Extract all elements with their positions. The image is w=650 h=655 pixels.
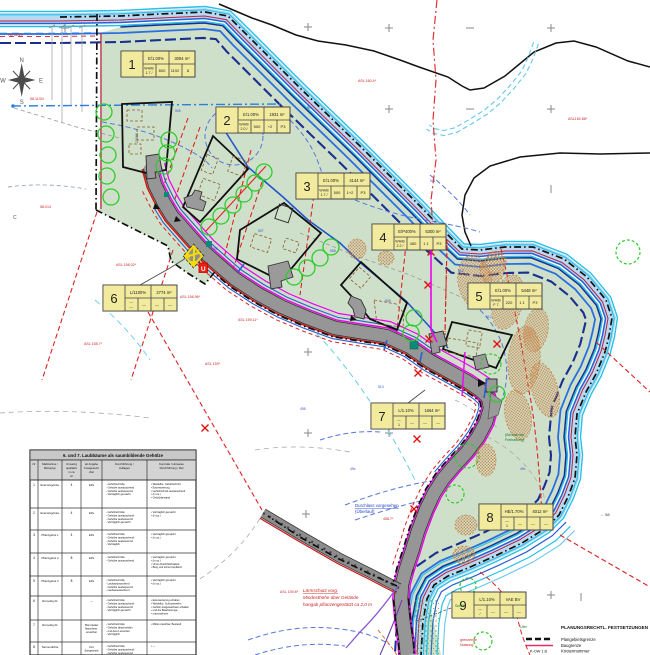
svg-text:1 1: 1 1 [519, 300, 525, 305]
svg-text:Pflanzgebot 1: Pflanzgebot 1 [41, 533, 59, 537]
svg-text:• Verträglich gemacht: • Verträglich gemacht [151, 578, 176, 582]
svg-text:—: — [505, 520, 509, 524]
svg-text:505: 505 [175, 109, 181, 113]
svg-text:E/1.00%: E/1.00% [495, 288, 511, 293]
svg-text:1: 1 [506, 524, 508, 528]
svg-text:800: 800 [159, 68, 166, 73]
svg-text:Nr: Nr [33, 462, 36, 466]
svg-text:—: — [531, 521, 535, 526]
svg-text:C: C [13, 215, 17, 221]
svg-text:—: — [423, 420, 427, 425]
svg-text:512: 512 [486, 315, 492, 319]
svg-text:Vermeidg dir.: Vermeidg dir. [42, 599, 59, 603]
svg-text:• —: • — [151, 645, 156, 648]
svg-text:Baugrenze: Baugrenze [561, 643, 582, 648]
svg-text:• Mittel ersetzbar, Bestand: • Mittel ersetzbar, Bestand [151, 622, 182, 626]
svg-text:2.2 /: 2.2 / [397, 244, 404, 248]
svg-text:1: 1 [33, 483, 35, 487]
svg-text:L/1.10%: L/1.10% [479, 597, 495, 602]
svg-text:• und die Bearbeitungs-: • und die Bearbeitungs- [151, 608, 178, 612]
svg-text:1.7 /: 1.7 / [146, 71, 153, 75]
svg-text:2: 2 [223, 113, 230, 128]
svg-text:—: — [397, 419, 401, 423]
svg-text:P3: P3 [437, 241, 443, 246]
svg-text:- Gehölze austauschend: - Gehölze austauschend [106, 558, 135, 562]
svg-text:4: 4 [33, 556, 35, 560]
svg-text:49x: 49x [350, 467, 356, 471]
svg-text:• Extensivierung: • Extensivierung [151, 485, 170, 489]
svg-text:- Verträglich: - Verträglich [106, 632, 120, 636]
svg-text:- Laubaustauschend: - Laubaustauschend [106, 588, 130, 592]
svg-text:2774 m²: 2774 m² [156, 290, 172, 295]
svg-text:500: 500 [334, 190, 341, 195]
svg-text:• Gehölzbestand: • Gehölzbestand [151, 496, 171, 500]
svg-text:Nutzung: Nutzung [460, 643, 473, 647]
svg-text:• (in ca.): • (in ca.) [151, 492, 161, 496]
svg-text:—: — [517, 609, 521, 614]
svg-text:- Verträglich gemacht: - Verträglich gemacht [106, 608, 131, 612]
svg-text:450: 450 [410, 241, 417, 246]
svg-text:E/P400%: E/P400% [398, 229, 416, 234]
svg-text:ASL 159.8*: ASL 159.8* [280, 590, 299, 594]
svg-text:- Gehölzschnitte: - Gehölzschnitte [106, 532, 125, 536]
svg-text:WH/B: WH/B [395, 240, 405, 244]
svg-text:- Gehölzschnitte: - Gehölzschnitte [106, 510, 125, 514]
svg-text:- Gehölze ausbessernd: - Gehölze ausbessernd [106, 489, 133, 493]
svg-text:—: — [518, 521, 522, 526]
svg-text:23088: 23088 [135, 133, 139, 143]
svg-text:511: 511 [430, 179, 436, 183]
svg-text:Ziel: Ziel [89, 470, 94, 474]
svg-text:Freihaltung): Freihaltung) [505, 438, 524, 442]
svg-text:(fortgesetzt): (fortgesetzt) [85, 648, 99, 652]
svg-text:- Gehölzschnitte: - Gehölzschnitte [106, 555, 125, 559]
svg-text:EPa: EPa [89, 579, 94, 583]
svg-text:- Gehölzschnitte: - Gehölzschnitte [106, 578, 125, 582]
svg-text:Knotennummer: Knotennummer [561, 649, 590, 654]
svg-text:ASL 158.96*: ASL 158.96* [180, 295, 201, 299]
svg-text:1: 1 [128, 57, 135, 72]
svg-text:58.11/04: 58.11/04 [30, 97, 44, 101]
svg-text:E/1.00%: E/1.00% [148, 56, 164, 61]
svg-text:3094 m²: 3094 m² [174, 56, 190, 61]
svg-text:—: — [491, 609, 495, 614]
svg-text:Extensivgrünla.: Extensivgrünla. [40, 511, 59, 515]
svg-text:ASL 159.11*: ASL 159.11* [238, 318, 258, 322]
svg-text:- Laubaustauschend: - Laubaustauschend [106, 581, 130, 585]
svg-text:4: 4 [379, 230, 386, 245]
svg-text:1.7 /: 1.7 / [321, 193, 328, 197]
svg-text:- Gehölzschnitte: - Gehölzschnitte [106, 644, 125, 648]
svg-text:- Gehölze austauschend: - Gehölze austauschend [106, 647, 135, 651]
svg-text:ASL 158.02*: ASL 158.02* [116, 263, 137, 267]
svg-text:VAE BV: VAE BV [506, 597, 521, 602]
svg-text:• Umso Durchführbarkeit: • Umso Durchführbarkeit [151, 562, 180, 566]
svg-text:- Gehölze austauschend: - Gehölze austauschend [106, 485, 135, 489]
svg-text:5300 m²: 5300 m² [425, 229, 441, 234]
svg-text:HE/1.70%: HE/1.70% [505, 509, 524, 514]
svg-text:495: 495 [300, 407, 306, 411]
svg-text:4: 4 [71, 533, 73, 537]
svg-text:- Gehölze austauschend: - Gehölze austauschend [106, 513, 135, 517]
svg-text:1931 m²: 1931 m² [269, 112, 285, 117]
svg-text:Fort: Fort [89, 645, 94, 649]
svg-text:58.013: 58.013 [40, 205, 51, 209]
svg-text:ASL160.88*: ASL160.88* [568, 117, 588, 121]
svg-text:W: W [0, 79, 6, 85]
svg-text:500: 500 [254, 124, 261, 129]
svg-text:Auflagen: Auflagen [119, 466, 130, 470]
svg-text:+2: +2 [268, 124, 273, 129]
svg-text:2: 2 [33, 511, 35, 515]
svg-text:- und deren ersetzen: - und deren ersetzen [106, 629, 130, 633]
svg-text:5: 5 [33, 579, 35, 583]
svg-text:Durchlass vorgesehen: Durchlass vorgesehen [355, 503, 399, 508]
svg-text:—: — [544, 521, 548, 526]
svg-text:508: 508 [330, 249, 336, 253]
svg-text:• Gehölz ausgewachsen erhalte: • Gehölz ausgewachsen erhalten [151, 605, 190, 609]
svg-text:WH/B: WH/B [491, 299, 501, 303]
svg-text:509: 509 [385, 299, 391, 303]
svg-text:ASL 159*: ASL 159* [205, 362, 221, 366]
svg-text:—: — [90, 600, 93, 603]
svg-text:P3: P3 [361, 190, 367, 195]
svg-text:← 58: ← 58 [600, 512, 610, 517]
svg-text:—: — [436, 420, 440, 425]
svg-text:• Verträglich gemacht: • Verträglich gemacht [151, 532, 176, 536]
svg-text:- Verträglich gemacht: - Verträglich gemacht [106, 520, 131, 524]
svg-text:• Berg und schon bepflanzt: • Berg und schon bepflanzt [151, 565, 182, 569]
svg-text:• Gehölzschnitt austauschend: • Gehölzschnitt austauschend [151, 489, 186, 493]
svg-text:E: E [39, 79, 43, 85]
svg-text:- Verträglich: - Verträglich [106, 542, 120, 546]
svg-text:5: 5 [475, 289, 482, 304]
svg-text:L/1.10%: L/1.10% [398, 408, 414, 413]
svg-text:- Gehölze ausbessernd: - Gehölze ausbessernd [106, 605, 133, 609]
svg-text:ASL 158.7*: ASL 158.7* [84, 342, 103, 346]
svg-text:2.0 /: 2.0 / [241, 127, 248, 131]
svg-text:PLANUNGSRECHTL. FESTSETZUNGEN: PLANUNGSRECHTL. FESTSETZUNGEN [561, 625, 649, 630]
svg-text:Pflanzgebot 2: Pflanzgebot 2 [41, 556, 59, 560]
svg-text:Plan lokaler: Plan lokaler [85, 623, 99, 627]
svg-text:- Gehölze ausbessernd: - Gehölze ausbessernd [106, 651, 133, 655]
svg-text:- Gehölzschnitte: - Gehölzschnitte [106, 598, 125, 602]
svg-text:• (in ca.): • (in ca.) [151, 513, 161, 517]
svg-text:4: 4 [71, 483, 73, 487]
svg-text:• massnahmen: • massnahmen [151, 612, 169, 616]
svg-text:• Extensivierung erhalten: • Extensivierung erhalten [151, 598, 180, 602]
svg-text:- Gehölze abschneiden: - Gehölze abschneiden [106, 625, 133, 629]
svg-text:- Gehölze ausbessernd: - Gehölze ausbessernd [106, 539, 133, 543]
svg-text:6: 6 [110, 291, 117, 306]
svg-text:• (in ca.): • (in ca.) [151, 535, 161, 539]
svg-text:L/1100%: L/1100% [130, 290, 146, 295]
svg-text:• Verträglich gemacht: • Verträglich gemacht [151, 555, 176, 559]
svg-text:4012 m²: 4012 m² [532, 509, 548, 514]
svg-text:7: 7 [378, 409, 385, 424]
svg-text:F 7: F 7 [493, 303, 498, 307]
svg-text:Biotoptyp: Biotoptyp [44, 466, 56, 470]
svg-text:513: 513 [378, 385, 384, 389]
svg-text:Hp 58.20: Hp 58.20 [8, 33, 23, 37]
svg-text:U: U [201, 266, 206, 273]
svg-text:458.7*: 458.7* [383, 517, 394, 521]
svg-text:m²: m² [70, 474, 73, 478]
svg-text:1 1: 1 1 [423, 241, 429, 246]
svg-text:hangab pflanzengestützt ca 2,0: hangab pflanzengestützt ca 2,0 m [303, 602, 372, 607]
svg-text:—: — [478, 608, 482, 612]
svg-text:- Gehölze ausbessernd: - Gehölze ausbessernd [106, 517, 133, 521]
svg-text:- Verträglich gemacht: - Verträglich gemacht [106, 492, 131, 496]
svg-text:P3: P3 [533, 300, 539, 305]
svg-text:Durchführung / Ziel: Durchführung / Ziel [160, 466, 184, 470]
svg-text:1192: 1192 [171, 68, 180, 73]
svg-text:EPa: EPa [89, 483, 94, 487]
svg-text:• Verträglich gemacht: • Verträglich gemacht [151, 510, 176, 514]
svg-text:1+2: 1+2 [347, 190, 355, 195]
svg-text:1664 m²: 1664 m² [424, 408, 440, 413]
svg-text:507: 507 [258, 229, 264, 233]
svg-text:Tannendichte: Tannendichte [42, 645, 59, 649]
svg-text:510: 510 [458, 269, 464, 273]
svg-text:7: 7 [33, 623, 35, 627]
svg-text:• (in ca.): • (in ca.) [151, 558, 161, 562]
svg-text:P3: P3 [281, 124, 287, 129]
svg-text:N: N [20, 58, 24, 64]
svg-text:- Gehölzschnitte: - Gehölzschnitte [106, 622, 125, 626]
svg-text:Baumbest.: Baumbest. [85, 626, 98, 630]
svg-text:K-OW 1 B: K-OW 1 B [530, 650, 548, 654]
svg-text:4: 4 [71, 511, 73, 515]
svg-text:WH/B: WH/B [144, 67, 154, 71]
svg-text:—: — [142, 302, 146, 307]
svg-text:Extensivgrünla.: Extensivgrünla. [40, 483, 59, 487]
svg-text:220: 220 [506, 300, 513, 305]
svg-text:S: S [20, 100, 24, 106]
svg-text:(Bereich der: (Bereich der [505, 433, 525, 437]
svg-text:—: — [168, 302, 172, 307]
svg-text:E/1.00%: E/1.00% [323, 178, 339, 183]
svg-text:5448 m²: 5448 m² [521, 288, 537, 293]
svg-text:ersetzbar: ersetzbar [86, 630, 97, 634]
svg-text:3: 3 [33, 533, 35, 537]
svg-text:Pflanzgebot 3: Pflanzgebot 3 [41, 579, 59, 583]
svg-text:8: 8 [33, 645, 35, 649]
svg-text:4144 m²: 4144 m² [349, 178, 365, 183]
svg-text:6: 6 [33, 599, 35, 603]
svg-text:• Weideflur, Schutzstreifen: • Weideflur, Schutzstreifen [151, 601, 182, 605]
svg-text:8: 8 [486, 510, 493, 525]
svg-text:E/1.00%: E/1.00% [243, 112, 259, 117]
svg-text:WH/B: WH/B [319, 189, 329, 193]
svg-text:49x: 49x [520, 467, 526, 471]
svg-text:—: — [410, 420, 414, 425]
svg-text:1: 1 [398, 423, 400, 427]
svg-text:- Gehölze austauschend: - Gehölze austauschend [106, 535, 135, 539]
svg-text:Schilf: Schilf [455, 604, 464, 608]
svg-text:WH/B: WH/B [239, 123, 249, 127]
svg-text:(Überlauf): (Überlauf) [355, 509, 375, 514]
svg-text:/: / [480, 612, 481, 616]
svg-text:506: 506 [212, 247, 218, 251]
svg-text:- Gehölzschnitte: - Gehölzschnitte [106, 482, 125, 486]
svg-text:Lärmschutz vorg.: Lärmschutz vorg. [303, 588, 338, 593]
svg-text:grenzende: grenzende [460, 638, 477, 642]
svg-text:6. und 7. Laubbäume als saumbi: 6. und 7. Laubbäume als saumbildende Geh… [63, 453, 164, 458]
svg-text:• (in ca.): • (in ca.) [151, 581, 161, 585]
svg-text:Vermeidg dir.: Vermeidg dir. [42, 623, 59, 627]
svg-text:—: — [504, 609, 508, 614]
svg-text:—: — [129, 301, 133, 305]
svg-text:EPa: EPa [89, 556, 94, 560]
svg-text:8: 8 [71, 579, 73, 583]
svg-text:EPa: EPa [89, 511, 94, 515]
svg-text:• Weideflur, Gehölzschnitt: • Weideflur, Gehölzschnitt [151, 482, 181, 486]
svg-text:3: 3 [303, 179, 310, 194]
svg-text:ASL 160.4*: ASL 160.4* [358, 79, 377, 83]
svg-text:Plangebietsgrenze: Plangebietsgrenze [561, 637, 596, 642]
svg-text:Ufer: Ufer [520, 625, 528, 629]
svg-text:- Gehölze austauschend: - Gehölze austauschend [106, 601, 135, 605]
svg-text:—: — [155, 302, 159, 307]
svg-text:EPa: EPa [89, 533, 94, 537]
svg-text:—: — [129, 305, 133, 309]
svg-text:Mindesthöhe über Gelände: Mindesthöhe über Gelände [303, 595, 359, 600]
svg-text:8: 8 [71, 556, 73, 560]
svg-text:- Gehölze ausbessernd: - Gehölze ausbessernd [106, 585, 133, 589]
